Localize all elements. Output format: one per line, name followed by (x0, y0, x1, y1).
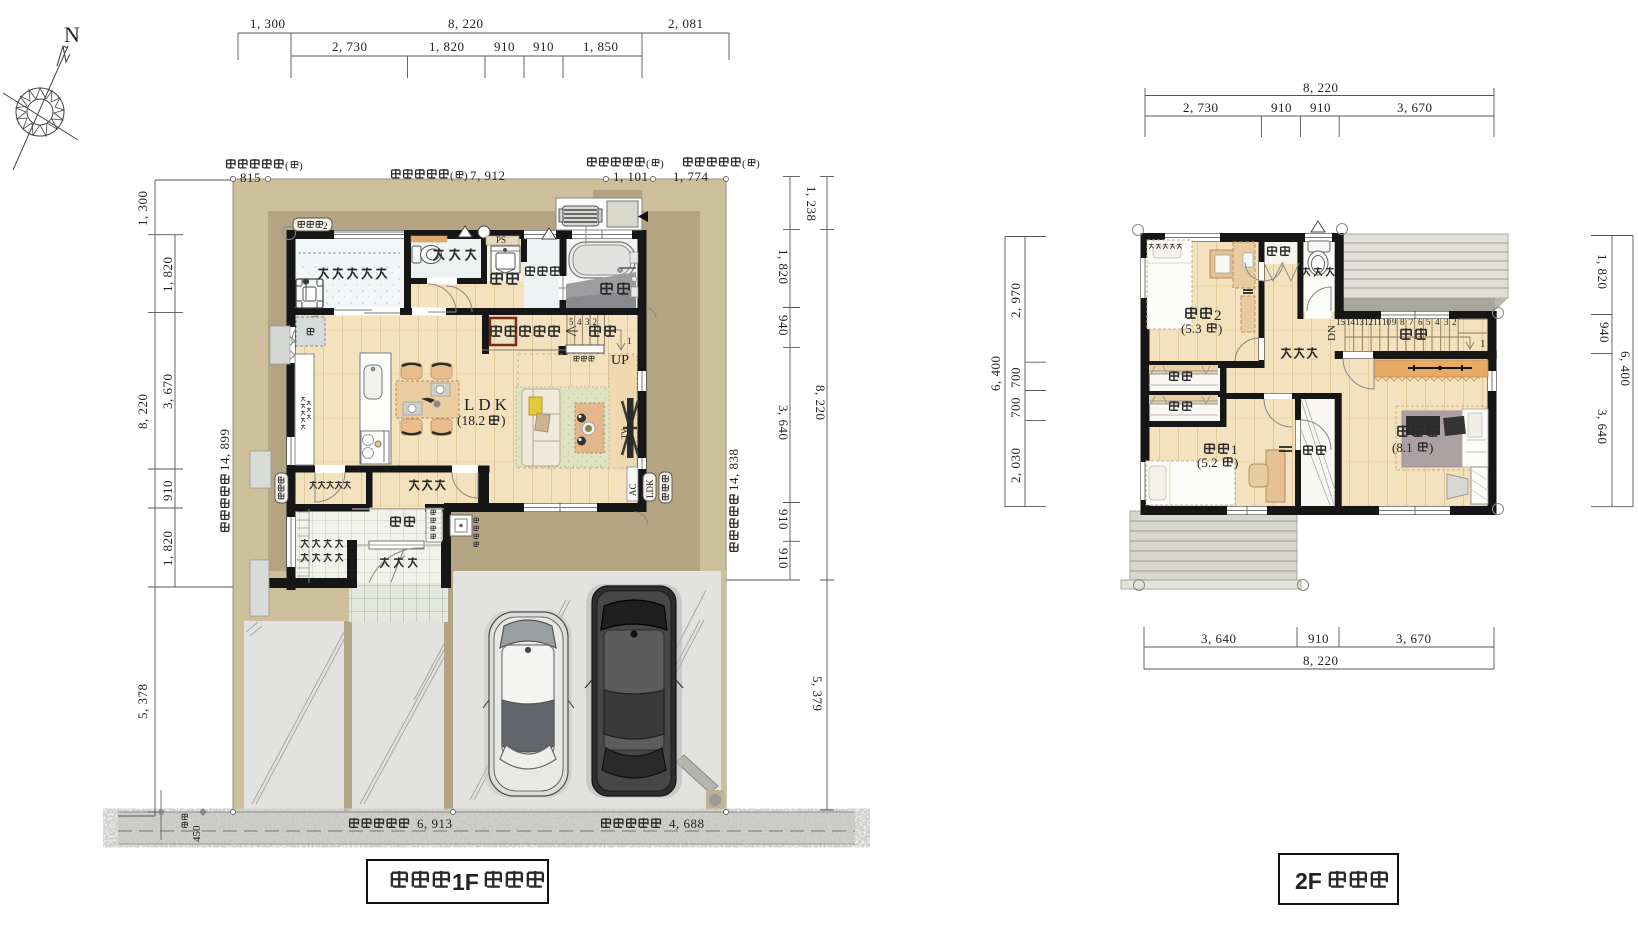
svg-text:2, 081: 2, 081 (668, 16, 704, 31)
svg-text:): ) (464, 170, 468, 182)
svg-text:910: 910 (494, 39, 515, 54)
svg-text:8: 8 (1400, 317, 1405, 327)
svg-text:2, 730: 2, 730 (1183, 100, 1219, 115)
svg-text:910: 910 (776, 509, 791, 530)
svg-text:8, 220: 8, 220 (448, 16, 484, 31)
svg-text:815: 815 (240, 170, 261, 185)
svg-text:6, 400: 6, 400 (988, 356, 1003, 392)
svg-text:9: 9 (1392, 317, 1397, 327)
svg-text:450: 450 (191, 825, 203, 842)
svg-text:11: 11 (1373, 317, 1382, 327)
svg-text:8, 220: 8, 220 (1303, 80, 1339, 95)
svg-text:7, 912: 7, 912 (470, 168, 506, 183)
svg-text:10: 10 (1382, 317, 1392, 327)
svg-text:3: 3 (585, 317, 590, 327)
svg-text:2: 2 (593, 317, 598, 327)
svg-text:1, 101: 1, 101 (613, 169, 649, 184)
svg-text:5, 379: 5, 379 (810, 676, 825, 712)
svg-text:2F: 2F (1295, 868, 1322, 894)
svg-text:): ) (1429, 440, 1433, 455)
svg-text:8, 220: 8, 220 (813, 385, 828, 421)
svg-text:8, 220: 8, 220 (1303, 653, 1339, 668)
svg-text:910: 910 (533, 39, 554, 54)
svg-text:1, 820: 1, 820 (160, 257, 175, 293)
svg-text:1, 820: 1, 820 (429, 39, 465, 54)
svg-text:PS: PS (496, 235, 506, 245)
svg-text:DN: DN (1326, 325, 1338, 341)
svg-text:15: 15 (1336, 317, 1346, 327)
svg-text:3, 640: 3, 640 (1201, 631, 1237, 646)
svg-text:4, 688: 4, 688 (669, 816, 705, 831)
svg-text:): ) (660, 158, 664, 170)
svg-text:2: 2 (323, 221, 328, 231)
svg-text:910: 910 (1308, 631, 1329, 646)
svg-text:(5.2: (5.2 (1197, 455, 1218, 470)
svg-text:UP: UP (611, 353, 629, 368)
svg-text:700: 700 (1008, 367, 1023, 388)
svg-text:12: 12 (1364, 317, 1373, 327)
svg-text:1, 850: 1, 850 (583, 39, 619, 54)
svg-text:7: 7 (1409, 317, 1414, 327)
svg-text:3, 670: 3, 670 (1397, 100, 1433, 115)
svg-text:8, 220: 8, 220 (135, 394, 150, 430)
svg-text:): ) (1234, 455, 1238, 470)
svg-text:1: 1 (627, 336, 632, 346)
svg-text:6, 913: 6, 913 (417, 816, 453, 831)
svg-text:5: 5 (1426, 317, 1431, 327)
svg-text:14, 899: 14, 899 (217, 429, 232, 472)
svg-text:5: 5 (569, 317, 574, 327)
svg-text:1, 300: 1, 300 (135, 191, 150, 227)
svg-text:3, 640: 3, 640 (1595, 409, 1610, 445)
svg-text:14, 838: 14, 838 (726, 449, 741, 492)
svg-text:3, 670: 3, 670 (1396, 631, 1432, 646)
svg-text:3: 3 (1444, 317, 1449, 327)
svg-text:910: 910 (1271, 100, 1292, 115)
svg-text:5, 378: 5, 378 (135, 684, 150, 720)
svg-text:910: 910 (1310, 100, 1331, 115)
svg-text:(: ( (285, 160, 289, 172)
svg-text:N: N (64, 22, 80, 47)
svg-text:LDK: LDK (464, 395, 511, 414)
svg-text:): ) (501, 413, 506, 428)
svg-text:1, 238: 1, 238 (804, 186, 819, 222)
svg-text:2, 970: 2, 970 (1008, 283, 1023, 319)
svg-text:3, 640: 3, 640 (776, 405, 791, 441)
svg-text:4: 4 (1435, 317, 1440, 327)
svg-text:(: ( (742, 158, 746, 170)
svg-text:1, 820: 1, 820 (1595, 254, 1610, 290)
svg-text:TV: TV (620, 428, 629, 439)
svg-text:940: 940 (1597, 322, 1612, 343)
svg-text:6: 6 (1418, 317, 1423, 327)
svg-text:2, 730: 2, 730 (332, 39, 368, 54)
svg-text:2, 030: 2, 030 (1008, 448, 1023, 484)
svg-text:2: 2 (1452, 317, 1457, 327)
svg-text:): ) (1218, 321, 1222, 336)
svg-text:(8.1: (8.1 (1392, 440, 1413, 455)
svg-text:(18.2: (18.2 (457, 413, 485, 428)
svg-text:6, 400: 6, 400 (1618, 351, 1633, 387)
svg-text:): ) (756, 158, 760, 170)
svg-text:1: 1 (1480, 338, 1486, 350)
svg-text:1F: 1F (452, 869, 479, 895)
svg-text:(5.3: (5.3 (1181, 321, 1202, 336)
svg-text:LDK: LDK (645, 479, 655, 498)
svg-text:910: 910 (160, 480, 175, 501)
svg-text:700: 700 (1008, 397, 1023, 418)
svg-text:(: ( (450, 170, 454, 182)
svg-text:4: 4 (577, 317, 582, 327)
svg-text:1, 820: 1, 820 (776, 249, 791, 285)
svg-text:1, 820: 1, 820 (160, 531, 175, 567)
svg-text:): ) (299, 160, 303, 172)
svg-text:3, 670: 3, 670 (160, 374, 175, 410)
svg-text:AC: AC (628, 483, 638, 496)
svg-text:1, 774: 1, 774 (673, 169, 709, 184)
svg-text:1, 300: 1, 300 (250, 16, 286, 31)
svg-text:940: 940 (776, 315, 791, 336)
svg-text:910: 910 (776, 548, 791, 569)
